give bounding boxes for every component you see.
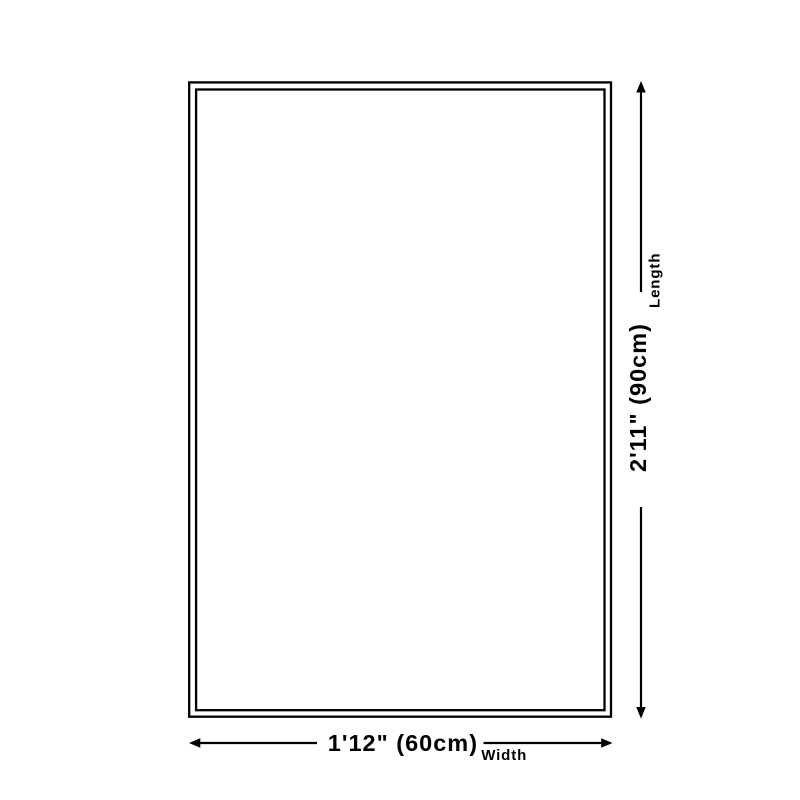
svg-text:Width: Width (481, 747, 527, 764)
svg-text:Length: Length (647, 253, 664, 308)
svg-text:2'11" (90cm): 2'11" (90cm) (625, 323, 651, 472)
svg-text:1'12" (60cm): 1'12" (60cm) (328, 730, 478, 756)
